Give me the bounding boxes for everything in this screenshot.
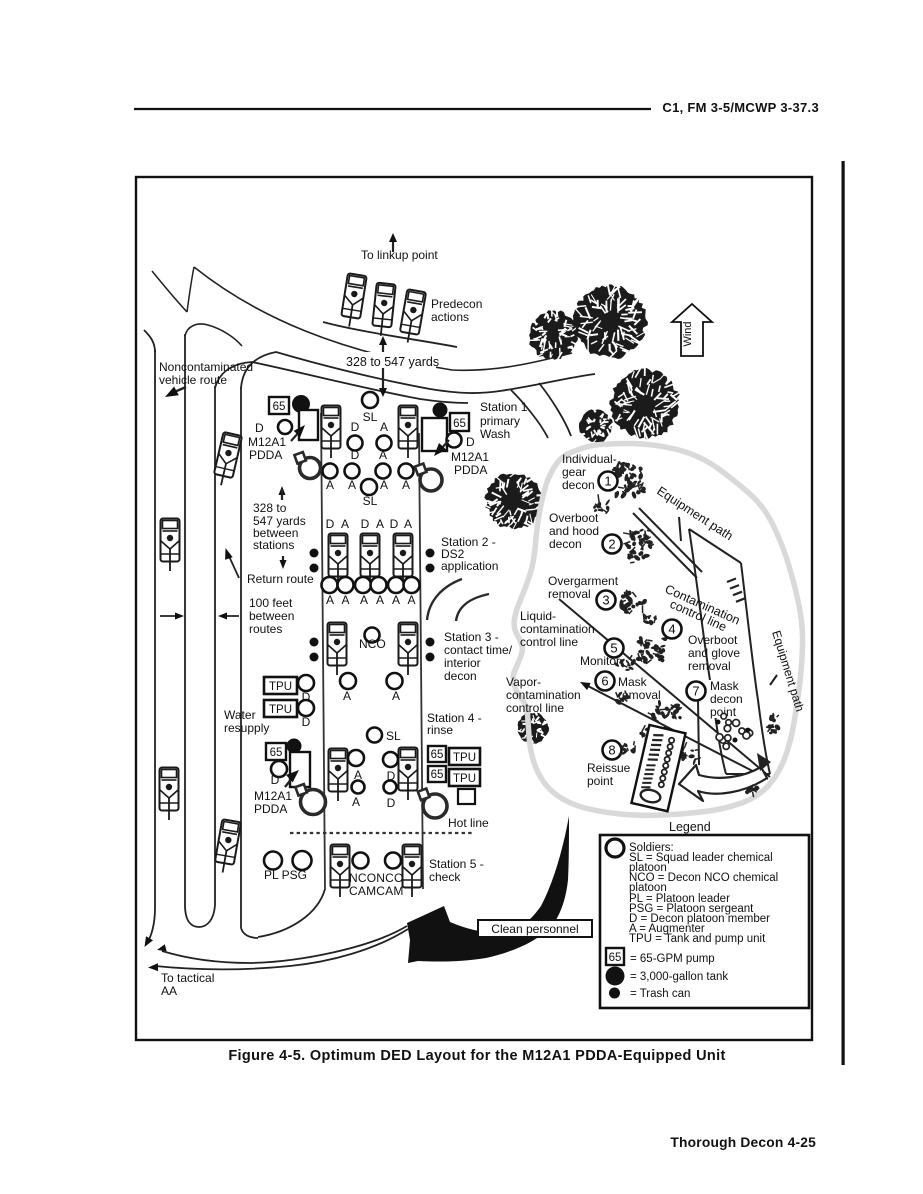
svg-text:A: A — [376, 517, 384, 531]
svg-text:D: D — [466, 435, 475, 449]
svg-text:Overboot: Overboot — [549, 511, 599, 525]
svg-text:TPU: TPU — [453, 752, 476, 764]
svg-text:A: A — [379, 448, 387, 462]
svg-text:328 to 547 yards: 328 to 547 yards — [346, 355, 439, 369]
svg-text:PDDA: PDDA — [454, 463, 487, 477]
svg-text:To tactical: To tactical — [161, 971, 214, 985]
svg-text:A: A — [392, 593, 400, 607]
svg-text:65: 65 — [609, 952, 622, 964]
svg-text:A: A — [352, 795, 360, 809]
svg-text:Water: Water — [224, 708, 256, 722]
svg-text:A: A — [380, 478, 388, 492]
svg-text:1: 1 — [604, 474, 611, 489]
svg-text:A: A — [343, 689, 351, 703]
svg-text:2: 2 — [608, 537, 615, 552]
svg-text:Return route: Return route — [247, 572, 314, 586]
svg-text:contact time/: contact time/ — [444, 643, 513, 657]
svg-text:PDDA: PDDA — [254, 802, 287, 816]
svg-text:Wash: Wash — [480, 427, 510, 441]
svg-text:D: D — [361, 517, 370, 531]
svg-text:control line: control line — [506, 701, 564, 715]
svg-text:Overgarment: Overgarment — [548, 574, 619, 588]
svg-text:A: A — [341, 593, 349, 607]
svg-text:A: A — [348, 478, 356, 492]
svg-text:100 feet: 100 feet — [249, 596, 293, 610]
svg-text:Predecon: Predecon — [431, 297, 482, 311]
svg-text:= Trash can: = Trash can — [630, 988, 690, 1000]
svg-text:M12A1: M12A1 — [451, 450, 489, 464]
svg-text:AA: AA — [161, 984, 177, 998]
svg-text:contamination: contamination — [520, 622, 595, 636]
svg-text:A: A — [407, 593, 415, 607]
svg-text:NCO: NCO — [359, 637, 386, 651]
svg-text:D: D — [326, 517, 335, 531]
svg-text:application: application — [441, 559, 498, 573]
svg-text:and hood: and hood — [549, 524, 599, 538]
svg-text:D: D — [387, 796, 396, 810]
svg-text:stations: stations — [253, 538, 294, 552]
svg-text:7: 7 — [692, 684, 699, 699]
svg-text:A: A — [326, 478, 334, 492]
svg-text:A: A — [392, 689, 400, 703]
svg-text:3: 3 — [602, 593, 609, 608]
svg-text:65: 65 — [431, 769, 444, 781]
svg-text:A: A — [380, 420, 388, 434]
svg-text:A: A — [341, 517, 349, 531]
svg-text:A: A — [360, 593, 368, 607]
svg-text:M12A1: M12A1 — [248, 435, 286, 449]
svg-text:actions: actions — [431, 310, 469, 324]
svg-text:Station 5 -: Station 5 - — [429, 857, 484, 871]
svg-text:removal: removal — [548, 587, 591, 601]
svg-text:328 to: 328 to — [253, 501, 287, 515]
svg-text:A: A — [402, 478, 410, 492]
svg-text:NCONCO: NCONCO — [349, 871, 404, 885]
svg-text:between: between — [249, 609, 294, 623]
svg-text:D: D — [390, 517, 399, 531]
svg-text:TPU: TPU — [269, 704, 292, 716]
svg-text:removal: removal — [688, 659, 731, 673]
svg-text:vehicle route: vehicle route — [159, 373, 227, 387]
svg-text:Thorough Decon 4-25: Thorough Decon 4-25 — [670, 1135, 816, 1150]
svg-text:A: A — [376, 593, 384, 607]
svg-text:Figure 4-5. Optimum DED Layou: Figure 4-5. Optimum DED Layout for the M… — [228, 1048, 725, 1064]
svg-text:Individual-: Individual- — [562, 452, 617, 466]
svg-text:Vapor-: Vapor- — [506, 675, 541, 689]
svg-text:Monitor: Monitor — [580, 654, 620, 668]
svg-text:Station 1: Station 1 — [480, 400, 528, 414]
svg-text:65: 65 — [273, 401, 286, 413]
svg-text:interior: interior — [444, 656, 481, 670]
svg-text:point: point — [587, 774, 614, 788]
svg-text:Liquid-: Liquid- — [520, 609, 556, 623]
svg-text:control line: control line — [520, 635, 578, 649]
svg-text:= 3,000-gallon tank: = 3,000-gallon tank — [630, 971, 728, 983]
svg-text:decon: decon — [562, 478, 595, 492]
svg-text:Hot line: Hot line — [448, 816, 489, 830]
svg-text:8: 8 — [608, 743, 615, 758]
svg-text:TPU: TPU — [269, 681, 292, 693]
svg-text:Mask: Mask — [618, 675, 648, 689]
svg-text:Clean personnel: Clean personnel — [491, 922, 578, 936]
svg-text:D: D — [351, 448, 360, 462]
svg-text:decon: decon — [710, 692, 743, 706]
svg-text:= 65-GPM pump: = 65-GPM pump — [630, 953, 715, 965]
svg-text:D: D — [271, 773, 280, 787]
svg-text:Station 3 -: Station 3 - — [444, 630, 499, 644]
svg-text:65: 65 — [270, 747, 283, 759]
svg-text:decon: decon — [549, 537, 582, 551]
svg-text:SL: SL — [386, 729, 401, 743]
svg-text:Wind: Wind — [682, 321, 694, 346]
svg-text:D: D — [302, 715, 311, 729]
svg-text:M12A1: M12A1 — [254, 789, 292, 803]
svg-text:65: 65 — [453, 418, 466, 430]
svg-text:CAMCAM: CAMCAM — [349, 884, 404, 898]
svg-text:D: D — [255, 421, 264, 435]
svg-text:contamination: contamination — [506, 688, 581, 702]
svg-text:primary: primary — [480, 414, 520, 428]
svg-text:To linkup point: To linkup point — [361, 248, 438, 262]
svg-text:65: 65 — [431, 749, 444, 761]
svg-text:gear: gear — [562, 465, 586, 479]
svg-text:SL: SL — [363, 410, 378, 424]
svg-text:routes: routes — [249, 622, 282, 636]
svg-text:Legend: Legend — [669, 820, 711, 834]
svg-text:rinse: rinse — [427, 723, 453, 737]
svg-text:A: A — [404, 517, 412, 531]
svg-text:A: A — [326, 593, 334, 607]
svg-text:Overboot: Overboot — [688, 633, 738, 647]
svg-text:PDDA: PDDA — [249, 448, 282, 462]
svg-text:C1, FM 3-5/MCWP 3-37.3: C1, FM 3-5/MCWP 3-37.3 — [662, 100, 819, 115]
svg-text:check: check — [429, 870, 461, 884]
svg-text:decon: decon — [444, 669, 477, 683]
svg-text:Noncontaminated: Noncontaminated — [159, 360, 253, 374]
svg-text:D: D — [351, 420, 360, 434]
svg-text:resupply: resupply — [224, 721, 269, 735]
svg-text:and glove: and glove — [688, 646, 740, 660]
svg-text:Mask: Mask — [710, 679, 740, 693]
svg-text:TPU: TPU — [453, 773, 476, 785]
svg-text:SL: SL — [363, 494, 378, 508]
svg-text:PL PSG: PL PSG — [264, 868, 307, 882]
svg-text:4: 4 — [668, 622, 675, 637]
svg-text:6: 6 — [601, 674, 608, 689]
svg-text:Reissue: Reissue — [587, 761, 631, 775]
svg-text:TPU = Tank and pump unit: TPU = Tank and pump unit — [629, 933, 766, 945]
